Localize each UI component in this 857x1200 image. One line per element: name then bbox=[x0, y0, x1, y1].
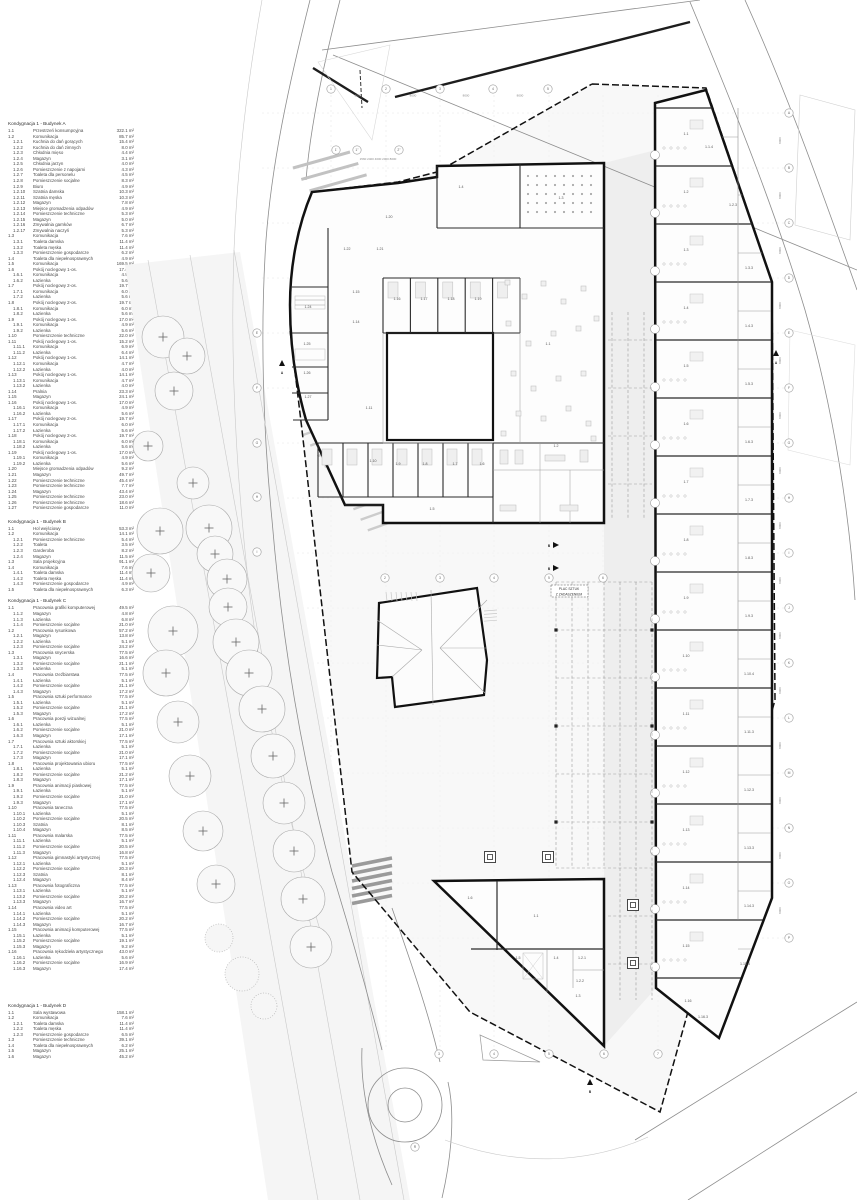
plan-room-label: 1.12 bbox=[683, 770, 690, 774]
grid-marker-label: 1' bbox=[335, 148, 338, 152]
conference-seat bbox=[527, 184, 529, 186]
tree bbox=[148, 606, 198, 656]
conference-seat bbox=[563, 193, 565, 195]
grid-marker-label: F bbox=[788, 386, 790, 390]
grid-marker: 5 bbox=[545, 574, 553, 582]
tree bbox=[263, 782, 305, 824]
door-swing bbox=[651, 557, 660, 566]
plan-room-label: 1.1 bbox=[534, 914, 539, 918]
dimension-text: 8000 bbox=[778, 852, 782, 859]
door-swing bbox=[651, 499, 660, 508]
conference-seat bbox=[590, 202, 592, 204]
grid-marker: 2'' bbox=[395, 146, 403, 154]
bed-furniture bbox=[322, 449, 332, 465]
conference-seat bbox=[563, 202, 565, 204]
grid-marker-label: 2'' bbox=[397, 148, 401, 152]
plan-room-label: 1.14 bbox=[353, 320, 360, 324]
restaurant-table bbox=[556, 376, 561, 381]
restaurant-table bbox=[506, 321, 511, 326]
grid-marker-label: L bbox=[788, 716, 790, 720]
plan-room-label: 1.6.3 bbox=[745, 440, 753, 444]
dimension-text: 8000 bbox=[778, 577, 782, 584]
architectural-site-plan-sheet: Kondygnacja 1 - Budynek A1.1Przestrzeń k… bbox=[0, 0, 857, 1200]
tree bbox=[155, 372, 193, 410]
plan-room-label: 1.5 bbox=[516, 956, 521, 960]
restaurant-table bbox=[541, 281, 546, 286]
kitchen-equipment bbox=[545, 455, 565, 461]
tree bbox=[132, 554, 170, 592]
site-plan-drawing: PLAC SZTUKZ ZADASZENIEM 1.201.221.211.15… bbox=[0, 0, 857, 1200]
grid-marker: 7 bbox=[654, 1050, 662, 1058]
restaurant-table bbox=[505, 280, 510, 285]
grid-marker: 4 bbox=[490, 574, 498, 582]
framed-column bbox=[485, 852, 496, 863]
grid-marker-label: 3 bbox=[439, 87, 441, 91]
door-swing bbox=[651, 383, 660, 392]
section-arrow bbox=[773, 350, 779, 356]
conference-seat bbox=[563, 175, 565, 177]
conference-seat bbox=[536, 184, 538, 186]
studio-table bbox=[690, 236, 703, 245]
tree bbox=[169, 338, 205, 374]
bed-furniture bbox=[388, 282, 398, 298]
framed-column bbox=[628, 900, 639, 911]
restaurant-table bbox=[576, 326, 581, 331]
restaurant-table bbox=[501, 431, 506, 436]
conference-seat bbox=[536, 175, 538, 177]
studio-table bbox=[690, 758, 703, 767]
grid-marker: F bbox=[785, 384, 793, 392]
boundary-stub bbox=[360, 70, 362, 108]
conference-seat bbox=[572, 211, 574, 213]
dimension-text: 8000 bbox=[778, 467, 782, 474]
grid-marker-label: O bbox=[788, 881, 791, 885]
tree bbox=[157, 701, 199, 743]
plan-room-label: 1.3 bbox=[684, 248, 689, 252]
grid-marker-label: 5 bbox=[548, 1052, 550, 1056]
studio-table bbox=[690, 584, 703, 593]
plan-room-label: 1.2.1 bbox=[578, 956, 586, 960]
grid-marker-label: F bbox=[256, 386, 258, 390]
grid-marker: I bbox=[785, 549, 793, 557]
conference-seat bbox=[581, 184, 583, 186]
plan-room-label: 1.5.3 bbox=[745, 382, 753, 386]
plan-room-label: 1.4 bbox=[684, 306, 689, 310]
conference-seat bbox=[527, 175, 529, 177]
grid-marker: E bbox=[253, 329, 261, 337]
plan-room-label: 1.3 bbox=[576, 994, 581, 998]
grid-marker: 2 bbox=[381, 574, 389, 582]
studio-table bbox=[690, 642, 703, 651]
conference-seat bbox=[572, 202, 574, 204]
grid-marker-label: 2 bbox=[385, 87, 387, 91]
grid-marker: 5 bbox=[544, 85, 552, 93]
studio-table bbox=[690, 526, 703, 535]
section-marker: A bbox=[279, 360, 285, 375]
plan-room-label: 1.9.3 bbox=[745, 614, 753, 618]
dimension-text: 8000 bbox=[778, 632, 782, 639]
plan-room-label: 1.10.4 bbox=[744, 672, 754, 676]
conference-seat bbox=[545, 175, 547, 177]
grid-marker-label: 4 bbox=[492, 87, 494, 91]
dimension-text: 8000 bbox=[778, 522, 782, 529]
tree bbox=[183, 811, 223, 851]
grid-marker: R bbox=[411, 1143, 419, 1151]
grid-marker: 4 bbox=[489, 85, 497, 93]
plan-room-label: 1.1 bbox=[546, 342, 551, 346]
conference-seat bbox=[536, 202, 538, 204]
restaurant-table bbox=[516, 411, 521, 416]
plan-room-label: 1.26 bbox=[304, 371, 311, 375]
tree bbox=[177, 467, 209, 499]
plan-room-label: 1.15 bbox=[353, 290, 360, 294]
plan-room-label: 1.1.4 bbox=[705, 145, 713, 149]
grid-marker-label: 2 bbox=[384, 576, 386, 580]
grid-marker: D bbox=[785, 274, 793, 282]
road-edge bbox=[442, 1082, 452, 1198]
grid-marker-label: I bbox=[257, 550, 258, 554]
tree bbox=[273, 830, 315, 872]
canopy-column bbox=[650, 724, 653, 727]
canopy-column bbox=[650, 628, 653, 631]
door-swing bbox=[651, 209, 660, 218]
conference-seat bbox=[536, 193, 538, 195]
conference-seat bbox=[590, 193, 592, 195]
section-arrow bbox=[279, 360, 285, 366]
plan-room-label: 1.15 bbox=[683, 944, 690, 948]
plan-room-label: 1.25 bbox=[304, 342, 311, 346]
dimension-text: 8000 bbox=[355, 94, 362, 98]
studio-table bbox=[690, 352, 703, 361]
studio-table bbox=[690, 932, 703, 941]
plan-room-label: 1.17 bbox=[421, 297, 428, 301]
parking-stripe bbox=[301, 163, 358, 179]
restaurant-table bbox=[581, 371, 586, 376]
restaurant-table bbox=[581, 286, 586, 291]
canopy-column bbox=[554, 724, 557, 727]
plan-room-label: 1.21 bbox=[377, 247, 384, 251]
conference-seat bbox=[554, 184, 556, 186]
grid-marker-label: M bbox=[788, 771, 791, 775]
plaza-strip bbox=[604, 150, 656, 1046]
grid-marker-label: 1 bbox=[330, 87, 332, 91]
restaurant-table bbox=[586, 421, 591, 426]
grid-marker: N bbox=[785, 824, 793, 832]
grid-marker: 3 bbox=[436, 574, 444, 582]
dimension-text: 8000 bbox=[778, 742, 782, 749]
dimension-text: 8000 bbox=[778, 302, 782, 309]
conference-seat bbox=[545, 193, 547, 195]
grid-marker: E bbox=[785, 329, 793, 337]
grid-marker-label: 3 bbox=[439, 576, 441, 580]
plan-room-label: 1.4 bbox=[459, 185, 464, 189]
grid-marker: 2 bbox=[382, 85, 390, 93]
conference-seat bbox=[527, 202, 529, 204]
door-swing bbox=[651, 441, 660, 450]
kitchen-equipment bbox=[580, 450, 588, 462]
plan-room-label: 1.2 bbox=[684, 190, 689, 194]
section-marker: B bbox=[587, 1079, 593, 1094]
adjacent-parcel bbox=[795, 95, 855, 240]
plan-room-label: 1.8.3 bbox=[745, 556, 753, 560]
door-swing bbox=[651, 325, 660, 334]
conference-seat bbox=[545, 211, 547, 213]
grid-marker: K bbox=[785, 659, 793, 667]
grid-marker: J bbox=[785, 604, 793, 612]
grid-marker: 1'' bbox=[353, 146, 361, 154]
plan-room-label: 1.1 bbox=[684, 132, 689, 136]
restaurant-table bbox=[531, 386, 536, 391]
tree bbox=[281, 877, 325, 921]
restaurant-table bbox=[522, 294, 527, 299]
plan-room-label: 1.2 bbox=[554, 444, 559, 448]
plan-room-label: 1.6 bbox=[468, 896, 473, 900]
grid-marker: 6 bbox=[600, 1050, 608, 1058]
bed-furniture bbox=[347, 449, 357, 465]
plan-room-label: 1.2.3 bbox=[729, 203, 737, 207]
door-swing bbox=[651, 267, 660, 276]
roundabout-inner bbox=[388, 1088, 422, 1122]
grid-marker: I bbox=[253, 548, 261, 556]
plan-room-label: 1.14.3 bbox=[744, 904, 754, 908]
grid-marker: 4 bbox=[490, 1050, 498, 1058]
grid-marker: 3 bbox=[435, 1050, 443, 1058]
framed-column bbox=[543, 852, 554, 863]
conference-seat bbox=[572, 193, 574, 195]
grid-marker: H bbox=[785, 494, 793, 502]
grid-marker-label: 4 bbox=[493, 576, 495, 580]
conference-seat bbox=[527, 211, 529, 213]
parking-stripe bbox=[293, 152, 350, 168]
studio-table bbox=[690, 700, 703, 709]
grid-marker: G bbox=[785, 439, 793, 447]
conference-seat bbox=[581, 175, 583, 177]
section-label: A bbox=[281, 371, 284, 375]
shrub bbox=[251, 993, 277, 1019]
plan-room-label: 1.4 bbox=[554, 956, 559, 960]
grid-marker-label: 5 bbox=[548, 576, 550, 580]
plan-room-label: 1.3 bbox=[559, 196, 564, 200]
adjacent-parcel bbox=[788, 330, 855, 465]
grid-marker-label: J bbox=[788, 606, 790, 610]
plan-room-label: 1.5 bbox=[430, 507, 435, 511]
restaurant-table bbox=[551, 331, 556, 336]
grid-marker: G bbox=[253, 439, 261, 447]
conference-seat bbox=[590, 184, 592, 186]
restaurant-table bbox=[561, 299, 566, 304]
grid-marker-label: 6 bbox=[603, 1052, 605, 1056]
conference-seat bbox=[554, 202, 556, 204]
canopy-column bbox=[650, 820, 653, 823]
restaurant-table bbox=[511, 371, 516, 376]
section-arrow bbox=[587, 1079, 593, 1085]
road-edge bbox=[745, 0, 857, 290]
dimension-text: 8000 bbox=[778, 137, 782, 144]
conference-seat bbox=[563, 211, 565, 213]
restaurant-table bbox=[526, 341, 531, 346]
dimension-text: 8000 bbox=[463, 94, 470, 98]
conference-seat bbox=[554, 211, 556, 213]
plan-room-label: 1.4.3 bbox=[745, 324, 753, 328]
grid-marker: H bbox=[253, 493, 261, 501]
plan-room-label: 1.8 bbox=[684, 538, 689, 542]
restaurant-table bbox=[591, 436, 596, 441]
plan-room-label: 1.3.3 bbox=[745, 266, 753, 270]
building-c-outline bbox=[655, 90, 772, 1038]
conference-seat bbox=[581, 202, 583, 204]
grid-marker: 6 bbox=[599, 574, 607, 582]
canopy-column bbox=[554, 820, 557, 823]
plan-room-label: 1.7 bbox=[453, 462, 458, 466]
courtyard bbox=[387, 333, 493, 440]
bed-furniture bbox=[470, 282, 480, 298]
building-b-roof bbox=[377, 588, 497, 707]
dimension-text: 8000 bbox=[778, 192, 782, 199]
conference-seat bbox=[527, 193, 529, 195]
grid-marker: P bbox=[785, 934, 793, 942]
building-a-footprint bbox=[290, 163, 604, 523]
plan-room-label: 1.10 bbox=[370, 459, 377, 463]
plan-room-label: 1.5 bbox=[684, 364, 689, 368]
studio-table bbox=[690, 294, 703, 303]
plaza-label: PLAC SZTUK bbox=[559, 587, 580, 591]
bed-furniture bbox=[443, 282, 453, 298]
plan-room-label: 1.11 bbox=[366, 406, 373, 410]
grid-marker: 5 bbox=[545, 1050, 553, 1058]
conference-seat bbox=[581, 193, 583, 195]
plan-room-label: 1.16.3 bbox=[698, 1015, 708, 1019]
conference-seat bbox=[536, 211, 538, 213]
plan-room-label: 1.6 bbox=[480, 462, 485, 466]
kitchen-equipment bbox=[500, 450, 508, 464]
plan-room-label: 1.7 bbox=[684, 480, 689, 484]
section-label: B bbox=[589, 1090, 592, 1094]
plan-room-label: 1.8 bbox=[423, 462, 428, 466]
tree bbox=[133, 431, 163, 461]
kitchen-equipment bbox=[560, 505, 578, 511]
studio-table bbox=[690, 874, 703, 883]
grid-marker: F bbox=[253, 384, 261, 392]
tree bbox=[290, 926, 332, 968]
plan-room-label: 1.27 bbox=[305, 395, 312, 399]
grid-marker: 1' bbox=[332, 146, 340, 154]
plan-room-label: 1.24 bbox=[305, 305, 312, 309]
plan-room-label: 1.16 bbox=[685, 999, 692, 1003]
conference-seat bbox=[581, 211, 583, 213]
dimension-text: 8000 bbox=[517, 94, 524, 98]
plan-room-label: 1.15.3 bbox=[740, 962, 750, 966]
conference-seat bbox=[545, 184, 547, 186]
plan-room-label: 1.6 bbox=[684, 422, 689, 426]
plan-room-label: 1.9 bbox=[684, 596, 689, 600]
tree bbox=[143, 650, 189, 696]
plan-room-label: 1.19 bbox=[475, 297, 482, 301]
building-c-wing bbox=[651, 90, 773, 1038]
tree bbox=[251, 734, 295, 778]
grid-marker-label: 5 bbox=[547, 87, 549, 91]
tree bbox=[197, 865, 235, 903]
dimension-text: 1560 2400 4000 2000 8000 bbox=[360, 157, 397, 161]
conference-seat bbox=[572, 184, 574, 186]
grid-marker: M bbox=[785, 769, 793, 777]
dimension-text: 8000 bbox=[778, 247, 782, 254]
grid-marker: B bbox=[785, 164, 793, 172]
plan-room-label: 1.2.2 bbox=[576, 979, 584, 983]
grid-marker-label: 4 bbox=[493, 1052, 495, 1056]
tree bbox=[239, 686, 285, 732]
studio-table bbox=[690, 178, 703, 187]
canopy-column bbox=[554, 628, 557, 631]
kitchen-equipment bbox=[515, 450, 523, 464]
dimension-text: 8000 bbox=[778, 797, 782, 804]
plan-room-label: 1.18 bbox=[448, 297, 455, 301]
plan-room-label: 1.10 bbox=[683, 654, 690, 658]
plan-room-label: 1.12.3 bbox=[744, 788, 754, 792]
plan-room-label: 1.11.3 bbox=[744, 730, 754, 734]
plan-room-label: 1.14 bbox=[683, 886, 690, 890]
grid-marker: L bbox=[785, 714, 793, 722]
road-edge bbox=[445, 1137, 648, 1159]
restaurant-table bbox=[541, 416, 546, 421]
dimension-text: 8000 bbox=[778, 907, 782, 914]
dimension-text: 8000 bbox=[778, 357, 782, 364]
studio-table bbox=[690, 816, 703, 825]
grid-marker-label: G bbox=[788, 441, 791, 445]
conference-seat bbox=[590, 211, 592, 213]
bed-furniture bbox=[415, 282, 425, 298]
plan-room-label: 1.11 bbox=[683, 712, 690, 716]
framed-column bbox=[628, 958, 639, 969]
grid-marker-label: 6 bbox=[602, 576, 604, 580]
road-edge bbox=[688, 1092, 857, 1200]
shrub bbox=[205, 924, 233, 952]
conference-seat bbox=[554, 193, 556, 195]
grid-marker: A bbox=[785, 109, 793, 117]
dimension-text: 8000 bbox=[778, 412, 782, 419]
shrub bbox=[225, 957, 259, 991]
grid-marker: 1 bbox=[327, 85, 335, 93]
dimension-text: 8000 bbox=[778, 687, 782, 694]
restaurant-table bbox=[566, 406, 571, 411]
plan-room-label: 1.7.3 bbox=[745, 498, 753, 502]
plan-room-label: 1.20 bbox=[386, 215, 393, 219]
conference-seat bbox=[572, 175, 574, 177]
tree bbox=[137, 508, 183, 554]
grid-marker: O bbox=[785, 879, 793, 887]
kitchen-equipment bbox=[500, 505, 516, 511]
conference-seat bbox=[590, 175, 592, 177]
conference-seat bbox=[554, 175, 556, 177]
road-edge bbox=[322, 0, 700, 50]
studio-table bbox=[690, 120, 703, 129]
dimension-text: 8000 bbox=[410, 94, 417, 98]
plan-room-label: 1.13 bbox=[683, 828, 690, 832]
studio-table bbox=[690, 410, 703, 419]
grid-marker-label: 3 bbox=[438, 1052, 440, 1056]
plaza-label: Z ZADASZENIEM bbox=[556, 593, 583, 597]
grid-marker-label: G bbox=[256, 441, 259, 445]
conference-seat bbox=[545, 202, 547, 204]
conference-seat bbox=[563, 184, 565, 186]
studio-table bbox=[690, 468, 703, 477]
grid-marker-label: 1'' bbox=[355, 148, 359, 152]
tree bbox=[169, 755, 211, 797]
grid-marker: C bbox=[785, 219, 793, 227]
grid-marker: 3 bbox=[436, 85, 444, 93]
restaurant-table bbox=[594, 316, 599, 321]
plan-room-label: 1.22 bbox=[344, 247, 351, 251]
plan-room-label: 1.16 bbox=[394, 297, 401, 301]
